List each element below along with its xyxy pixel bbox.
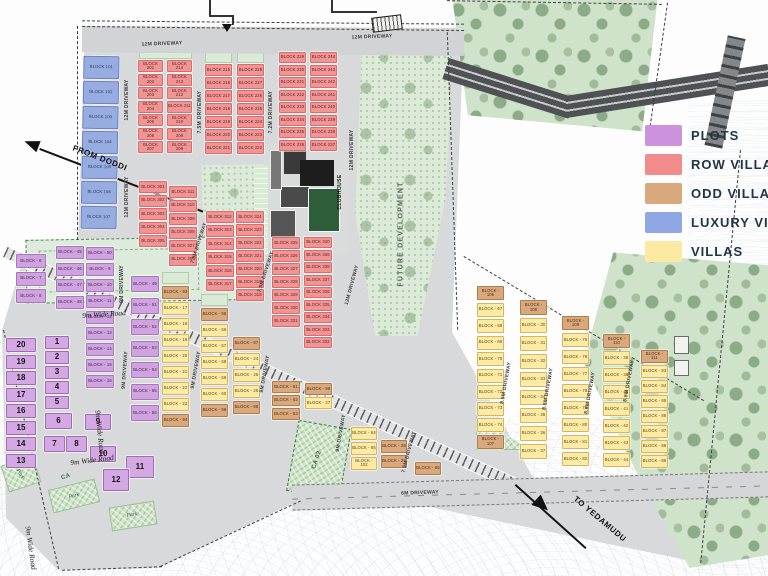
plot-block: BLOCK 216 xyxy=(205,77,232,89)
block-column: BLOCK - 64BLOCK - 65BLOCK - 102 xyxy=(351,427,377,472)
plot-block: BLOCK - 44 xyxy=(603,453,630,467)
plot-block: BLOCK - 39 xyxy=(603,368,630,382)
plot-block: BLOCK 301 xyxy=(139,181,167,193)
plot-block: 9 xyxy=(85,414,111,430)
plot-block: BLOCK 330 xyxy=(272,302,300,314)
plot-block: BLOCK - 21 xyxy=(162,366,189,379)
plot-block: BLOCK - 48 xyxy=(56,296,84,309)
legend-item: VILLAS xyxy=(645,241,743,262)
block-column: BLOCK 215BLOCK 216BLOCK 217BLOCK 218BLOC… xyxy=(205,64,232,155)
plot-block: BLOCK 316 xyxy=(206,265,234,277)
plot-block: BLOCK 314 xyxy=(206,238,234,250)
block-column: BLOCK 244BLOCK 243BLOCK 242BLOCK 241BLOC… xyxy=(310,52,337,152)
plot-block: BLOCK 304 xyxy=(139,222,167,234)
plot-block: 6 xyxy=(45,413,72,429)
plot-block: BLOCK 217 xyxy=(205,90,232,102)
plot-block: BLOCK - 7 xyxy=(16,272,46,286)
plot-block: BLOCK - 66 xyxy=(415,462,441,475)
plot-block: 12 xyxy=(103,469,129,491)
legend-swatch xyxy=(645,125,682,146)
plot-block: BLOCK - 70 xyxy=(477,352,504,366)
legend-label: PLOTS xyxy=(691,128,739,143)
plot-block: BLOCK 206 xyxy=(138,128,163,140)
plot-block: BLOCK 204 xyxy=(138,101,163,113)
plot-block: 14 xyxy=(6,437,36,451)
block-column: BLOCK 311BLOCK 310BLOCK 309BLOCK 308BLOC… xyxy=(169,186,197,267)
plot-block: 17 xyxy=(6,388,36,402)
plot-block: BLOCK - 42 xyxy=(603,419,630,433)
plot-block: BLOCK - 54 xyxy=(131,362,159,378)
plot-block: BLOCK - 9 xyxy=(86,263,114,276)
plot-block: BLOCK 309 xyxy=(169,213,197,225)
block-column: BLOCK - 49BLOCK - 51BLOCK - 52BLOCK - 53… xyxy=(131,276,159,427)
plot-block: BLOCK 105 xyxy=(81,156,117,180)
clubhouse-court xyxy=(308,188,340,232)
plot-block: BLOCK 303 xyxy=(139,208,167,220)
plot-block: BLOCK 310 xyxy=(169,200,197,212)
plot-block: BLOCK - 31 xyxy=(520,336,547,351)
plot-block: 19 xyxy=(6,355,36,369)
plot-block: BLOCK - 43 xyxy=(603,436,630,450)
plot-block: BLOCK - 6 xyxy=(16,254,46,268)
plot-block: BLOCK 214 xyxy=(167,60,192,72)
block-column: BLOCK - 108BLOCK - 30BLOCK - 31BLOCK - 3… xyxy=(520,300,547,462)
plot-block: BLOCK 337 xyxy=(304,275,332,286)
plot-block: BLOCK - 53 xyxy=(131,341,159,357)
plot-block: BLOCK 335 xyxy=(304,300,332,311)
plot-block: 13 xyxy=(6,454,36,468)
plot-block: BLOCK - 76 xyxy=(562,350,589,364)
plot-block: BLOCK 205 xyxy=(138,114,163,126)
plot-block: BLOCK 340 xyxy=(304,237,332,248)
plot-block: BLOCK 302 xyxy=(139,195,167,207)
plot-block: BLOCK 325 xyxy=(272,237,300,249)
plot-block: BLOCK 313 xyxy=(206,225,234,237)
plot-block: BLOCK 236 xyxy=(279,140,306,151)
plot-block: BLOCK 307 xyxy=(169,240,197,252)
plot-block: BLOCK - 20 xyxy=(162,350,189,363)
plot-block: BLOCK - 61 xyxy=(272,381,300,393)
plot-block: BLOCK - 11 xyxy=(86,295,114,308)
plot-block: BLOCK - 12 xyxy=(86,311,114,324)
legend-swatch xyxy=(645,241,682,262)
plot-block: BLOCK - 34 xyxy=(520,390,547,405)
plot-block: BLOCK 102 xyxy=(83,81,119,105)
plot-block: BLOCK - 80 xyxy=(562,418,589,432)
block-column: BLOCK - 28BLOCK - 29 xyxy=(381,440,407,470)
plot-block: BLOCK 222 xyxy=(237,142,264,154)
plot-block: BLOCK 226 xyxy=(237,90,264,102)
plot-block: BLOCK - 10 xyxy=(86,279,114,292)
plot-block: BLOCK - 52 xyxy=(131,319,159,335)
plot-block: BLOCK - 38 xyxy=(603,351,630,365)
legend-swatch xyxy=(645,154,682,175)
plot-block: BLOCK - 37 xyxy=(520,444,547,459)
clubhouse-building xyxy=(280,186,310,208)
plot-block: BLOCK - 30 xyxy=(520,318,547,333)
legend-label: ODD VILLAS xyxy=(691,186,768,201)
plot-block: BLOCK 319 xyxy=(236,276,264,288)
plot-block: BLOCK - 65 xyxy=(351,442,377,455)
plot-block: BLOCK 224 xyxy=(237,116,264,128)
block-column: BLOCK - 110BLOCK - 38BLOCK - 39BLOCK - 4… xyxy=(603,334,630,470)
legend-swatch xyxy=(645,183,682,204)
legend-label: LUXURY VILLAS xyxy=(691,215,768,230)
block-column: BLOCK - 95BLOCK - 56BLOCK - 57BLOCK - 58… xyxy=(201,308,228,420)
plot-block: BLOCK 244 xyxy=(310,52,337,63)
block-column: BLOCK 229BLOCK 230BLOCK 231BLOCK 232BLOC… xyxy=(279,52,306,152)
legend-item: LUXURY VILLAS xyxy=(645,212,768,233)
plot-block: BLOCK - 97 xyxy=(233,337,260,350)
plot-block: BLOCK 235 xyxy=(279,127,306,138)
plot-block: BLOCK 322 xyxy=(236,237,264,249)
plot-block: BLOCK - 81 xyxy=(562,435,589,449)
plot-block: BLOCK - 87 xyxy=(641,425,668,438)
block-column: BLOCK 324BLOCK 323BLOCK 322BLOCK 321BLOC… xyxy=(236,211,264,302)
plot-block: BLOCK - 26 xyxy=(233,385,260,398)
plot-block: BLOCK - 71 xyxy=(477,369,504,383)
plot-block: BLOCK 311 xyxy=(169,186,197,198)
plot-block: BLOCK 209 xyxy=(167,128,192,140)
plot-block: BLOCK 232 xyxy=(279,90,306,101)
plot-block: BLOCK 315 xyxy=(206,252,234,264)
plot-block: BLOCK 106 xyxy=(81,181,117,205)
plot-block: BLOCK - 15 xyxy=(86,359,114,372)
plot-block: BLOCK - 19 xyxy=(162,334,189,347)
legend-item: ROW VILLAS xyxy=(645,154,768,175)
plot-block: BLOCK - 56 xyxy=(131,405,159,421)
plot-block: BLOCK 215 xyxy=(205,64,232,76)
plot-block: BLOCK 219 xyxy=(205,116,232,128)
plot-block: BLOCK - 47 xyxy=(56,279,84,292)
plot-block: BLOCK - 84 xyxy=(641,380,668,393)
block-column: BLOCK 228BLOCK 227BLOCK 226BLOCK 225BLOC… xyxy=(237,64,264,155)
block-column: BLOCK - 61BLOCK - 62BLOCK - 63 xyxy=(272,381,300,422)
plot-block: BLOCK 239 xyxy=(310,115,337,126)
plot-block: BLOCK 317 xyxy=(206,279,234,291)
plot-block: BLOCK - 69 xyxy=(477,336,504,350)
plot-block: BLOCK - 108 xyxy=(520,300,547,315)
plot-block: BLOCK 211 xyxy=(167,101,192,113)
plot-block: BLOCK - 111 xyxy=(641,350,668,363)
plot-block: 8 xyxy=(66,436,87,452)
plot-block: BLOCK 308 xyxy=(169,227,197,239)
plot-block: BLOCK 333 xyxy=(304,325,332,336)
plot-block: BLOCK - 49 xyxy=(131,276,159,292)
plot-block: BLOCK 241 xyxy=(310,90,337,101)
plot-block: BLOCK 338 xyxy=(304,262,332,273)
plot-block: BLOCK - 68 xyxy=(477,319,504,333)
plot-block: BLOCK - 73 xyxy=(477,402,504,416)
plot-block: 20 xyxy=(6,338,36,352)
plot-block: BLOCK - 22 xyxy=(162,382,189,395)
plot-block: BLOCK - 110 xyxy=(603,334,630,348)
plot-block: BLOCK - 89 xyxy=(641,455,668,468)
plot-block: 11 xyxy=(126,456,154,478)
plot-block: BLOCK 326 xyxy=(272,250,300,262)
plot-block: BLOCK - 88 xyxy=(641,440,668,453)
plot-block: BLOCK - 83 xyxy=(641,365,668,378)
plot-block: BLOCK 320 xyxy=(236,263,264,275)
plot-block: BLOCK - 82 xyxy=(562,452,589,466)
plot-block: BLOCK - 14 xyxy=(86,343,114,356)
site-plan-map: BLOCK 101BLOCK 102BLOCK 103BLOCK 104BLOC… xyxy=(0,0,768,576)
plot-block: BLOCK - 33 xyxy=(520,372,547,387)
plot-block: BLOCK 107 xyxy=(81,206,117,230)
plot-block: BLOCK - 74 xyxy=(477,418,504,432)
plot-block: BLOCK - 29 xyxy=(381,455,407,468)
plot-block: BLOCK 210 xyxy=(167,114,192,126)
plot-block: 18 xyxy=(6,371,36,385)
plot-block: BLOCK 237 xyxy=(310,140,337,151)
plot-block: BLOCK 240 xyxy=(310,102,337,113)
plot-block: BLOCK - 13 xyxy=(86,327,114,340)
block-column: BLOCK - 109BLOCK - 75BLOCK - 76BLOCK - 7… xyxy=(562,316,589,469)
plot-block: BLOCK - 107 xyxy=(477,435,504,449)
plot-block: BLOCK 221 xyxy=(205,142,232,154)
plot-block: BLOCK - 27 xyxy=(305,397,332,409)
plot-block: BLOCK - 36 xyxy=(520,426,547,441)
plot-block: BLOCK - 94 xyxy=(162,414,189,427)
plot-block: BLOCK 202 xyxy=(138,74,163,86)
block-column: BLOCK - 6BLOCK - 7BLOCK - 8 xyxy=(16,254,46,307)
clubhouse-building xyxy=(270,210,296,238)
plot-block: BLOCK 103 xyxy=(82,106,118,130)
block-column: BLOCK - 111BLOCK - 83BLOCK - 84BLOCK - 8… xyxy=(641,350,668,470)
plot-block: BLOCK 228 xyxy=(237,64,264,76)
plot-block: BLOCK - 99 xyxy=(305,383,332,395)
plot-block: BLOCK 329 xyxy=(272,289,300,301)
block-column: BLOCK 101BLOCK 102BLOCK 103BLOCK 104BLOC… xyxy=(80,56,119,232)
plot-block: BLOCK 305 xyxy=(139,235,167,247)
plot-block: BLOCK 323 xyxy=(236,224,264,236)
plot-block: BLOCK - 18 xyxy=(162,318,189,331)
plot-block: BLOCK - 75 xyxy=(562,333,589,347)
plot-block: BLOCK - 72 xyxy=(477,385,504,399)
block-column: BLOCK - 93BLOCK - 17BLOCK - 18BLOCK - 19… xyxy=(162,286,189,430)
plot-block: BLOCK - 25 xyxy=(233,369,260,382)
plot-block: BLOCK 321 xyxy=(236,250,264,262)
plot-block: BLOCK - 86 xyxy=(641,410,668,423)
plot-block: BLOCK 318 xyxy=(236,289,264,301)
block-column: BLOCK 312BLOCK 313BLOCK 314BLOCK 315BLOC… xyxy=(206,211,234,292)
plot-block: BLOCK - 32 xyxy=(520,354,547,369)
plot-block: BLOCK 201 xyxy=(138,60,163,72)
plot-block: BLOCK - 93 xyxy=(162,286,189,299)
plot-block: BLOCK - 45 xyxy=(56,246,84,259)
plot-block: 7 xyxy=(44,436,65,452)
plot-block: BLOCK - 77 xyxy=(562,367,589,381)
plot-block: 2 xyxy=(45,351,69,364)
plot-block: 3 xyxy=(45,366,69,379)
block-column: BLOCK - 66 xyxy=(415,462,441,477)
plot-block: BLOCK 231 xyxy=(279,77,306,88)
legend-item: PLOTS xyxy=(645,125,739,146)
block-column: 12345 xyxy=(45,336,69,411)
block-column: BLOCK - 99BLOCK - 27 xyxy=(305,383,332,411)
plot-block: BLOCK - 46 xyxy=(56,263,84,276)
plot-block: BLOCK 223 xyxy=(237,129,264,141)
block-column: BLOCK 301BLOCK 302BLOCK 303BLOCK 304BLOC… xyxy=(139,181,167,249)
plot-block: BLOCK - 17 xyxy=(162,302,189,315)
block-column: BLOCK 340BLOCK 339BLOCK 338BLOCK 337BLOC… xyxy=(304,237,332,350)
plot-block: BLOCK 230 xyxy=(279,65,306,76)
plot-block: BLOCK - 102 xyxy=(351,457,377,470)
plot-block: BLOCK - 59 xyxy=(201,372,228,385)
block-column: BLOCK - 45BLOCK - 46BLOCK - 47BLOCK - 48 xyxy=(56,246,84,312)
plot-block: BLOCK 229 xyxy=(279,52,306,63)
clubhouse-building xyxy=(270,150,282,190)
plot-block: BLOCK - 50 xyxy=(86,247,114,260)
legend-label: VILLAS xyxy=(691,244,743,259)
plot-block: BLOCK - 24 xyxy=(233,353,260,366)
plot-block: BLOCK 101 xyxy=(83,56,119,80)
plot-block: BLOCK 243 xyxy=(310,65,337,76)
plot-block: 16 xyxy=(6,404,36,418)
plot-block: BLOCK - 62 xyxy=(272,395,300,407)
legend-swatch xyxy=(645,212,682,233)
plot-block: BLOCK 220 xyxy=(205,129,232,141)
plot-block: BLOCK - 78 xyxy=(562,384,589,398)
plot-block: BLOCK - 96 xyxy=(201,404,228,417)
plot-block: BLOCK 336 xyxy=(304,287,332,298)
plot-block: BLOCK - 8 xyxy=(16,289,46,303)
plot-block: BLOCK - 55 xyxy=(131,384,159,400)
block-column: BLOCK 214BLOCK 213BLOCK 212BLOCK 211BLOC… xyxy=(167,60,192,155)
plot-block: BLOCK 208 xyxy=(167,141,192,153)
plot-block: BLOCK 207 xyxy=(138,141,163,153)
utility-box xyxy=(674,336,689,354)
plot-block: BLOCK - 23 xyxy=(162,398,189,411)
plot-block: BLOCK 233 xyxy=(279,102,306,113)
block-column: BLOCK 201BLOCK 202BLOCK 203BLOCK 204BLOC… xyxy=(138,60,163,155)
block-column: 2019181716151413 xyxy=(6,338,36,470)
block-column: BLOCK - 50BLOCK - 9BLOCK - 10BLOCK - 11B… xyxy=(86,247,114,391)
plot-block: BLOCK 339 xyxy=(304,250,332,261)
plot-block: BLOCK 328 xyxy=(272,276,300,288)
plot-block: 15 xyxy=(6,421,36,435)
plot-block: BLOCK - 58 xyxy=(201,356,228,369)
plot-block: BLOCK - 16 xyxy=(86,375,114,388)
plot-block: BLOCK 225 xyxy=(237,103,264,115)
plot-block: BLOCK 334 xyxy=(304,312,332,323)
top-driveway-road xyxy=(82,26,464,56)
from-doddi-arrowhead xyxy=(22,136,40,153)
plot-block: 4 xyxy=(45,381,69,394)
plot-block: BLOCK - 40 xyxy=(603,385,630,399)
plot-block: BLOCK 212 xyxy=(167,87,192,99)
plot-block: BLOCK - 28 xyxy=(381,440,407,453)
plot-block: BLOCK 331 xyxy=(272,315,300,327)
plot-block: BLOCK - 41 xyxy=(603,402,630,416)
callout-arrow xyxy=(222,24,232,32)
plot-block: BLOCK - 109 xyxy=(562,316,589,330)
plot-block: BLOCK - 60 xyxy=(201,388,228,401)
plot-block: BLOCK - 98 xyxy=(233,401,260,414)
plot-block: BLOCK - 63 xyxy=(272,408,300,420)
block-column: BLOCK - 106BLOCK - 67BLOCK - 68BLOCK - 6… xyxy=(477,286,504,451)
block-column: BLOCK 325BLOCK 326BLOCK 327BLOCK 328BLOC… xyxy=(272,237,300,328)
plot-block: 1 xyxy=(45,336,69,349)
plot-block: BLOCK - 85 xyxy=(641,395,668,408)
clubhouse-building xyxy=(300,160,334,186)
utility-box xyxy=(674,360,689,376)
plot-block: BLOCK 312 xyxy=(206,211,234,223)
plot-block: BLOCK - 35 xyxy=(520,408,547,423)
plot-block: BLOCK 238 xyxy=(310,127,337,138)
plot-block: BLOCK 324 xyxy=(236,211,264,223)
plot-block: BLOCK - 67 xyxy=(477,303,504,317)
block-column: BLOCK - 97BLOCK - 24BLOCK - 25BLOCK - 26… xyxy=(233,337,260,417)
plot-block: BLOCK - 56 xyxy=(201,324,228,337)
legend-label: ROW VILLAS xyxy=(691,157,768,172)
plot-block: BLOCK - 79 xyxy=(562,401,589,415)
legend-item: ODD VILLAS xyxy=(645,183,768,204)
plot-block: BLOCK 213 xyxy=(167,74,192,86)
plot-block: BLOCK 306 xyxy=(169,254,197,266)
plot-block: BLOCK 327 xyxy=(272,263,300,275)
plot-block: BLOCK 203 xyxy=(138,87,163,99)
plot-block: BLOCK 104 xyxy=(82,131,118,155)
plot-block: BLOCK - 64 xyxy=(351,427,377,440)
plot-block: BLOCK - 51 xyxy=(131,298,159,314)
plot-block: BLOCK 227 xyxy=(237,77,264,89)
plot-block: 10 xyxy=(90,446,116,462)
plot-block: BLOCK 234 xyxy=(279,115,306,126)
plot-block: BLOCK 218 xyxy=(205,103,232,115)
plot-block: 5 xyxy=(45,396,69,409)
plot-block: BLOCK 332 xyxy=(304,337,332,348)
plot-block: BLOCK - 57 xyxy=(201,340,228,353)
plot-block: BLOCK - 106 xyxy=(477,286,504,300)
plot-block: BLOCK - 95 xyxy=(201,308,228,321)
plot-block: BLOCK 242 xyxy=(310,77,337,88)
